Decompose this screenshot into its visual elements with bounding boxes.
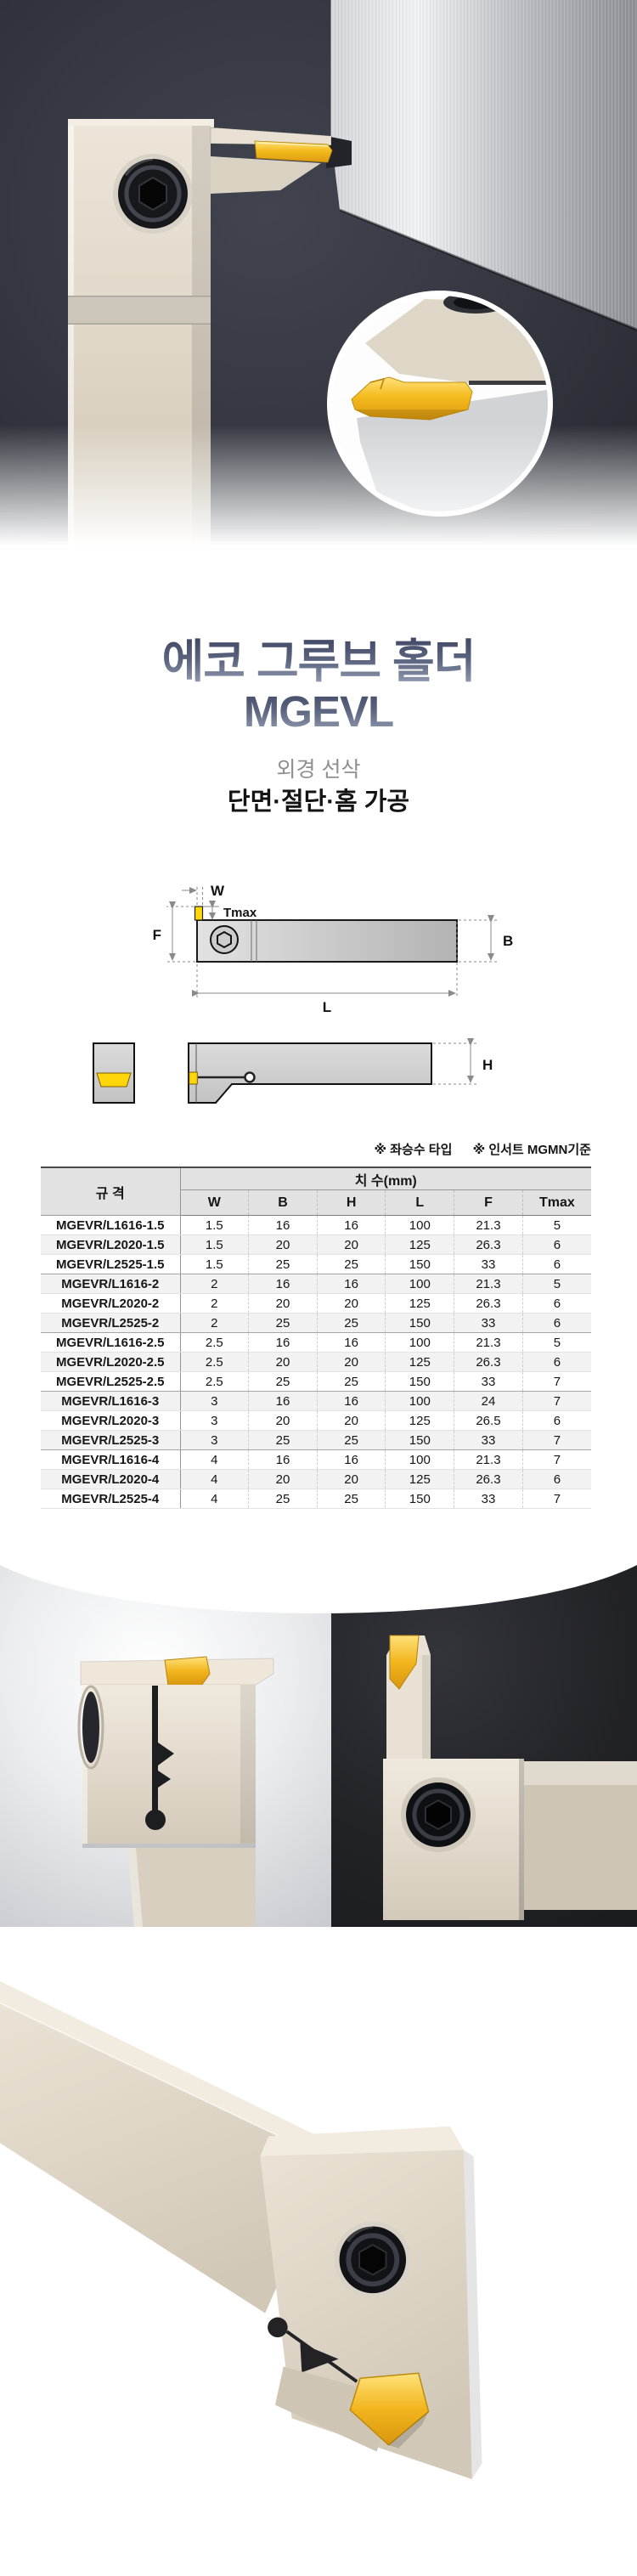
diagram-side-view: H [93, 1043, 493, 1103]
diagram-screw [211, 926, 238, 953]
table-row: MGEVR/L2020-1.51.5202012526.36 [41, 1235, 591, 1255]
value-cell: 150 [386, 1489, 454, 1509]
spec-cell: MGEVR/L2525-4 [41, 1489, 180, 1509]
spec-cell: MGEVR/L2020-4 [41, 1470, 180, 1489]
value-cell: 20 [317, 1353, 386, 1372]
value-cell: 3 [180, 1431, 249, 1450]
dim-label-f: F [153, 927, 161, 943]
value-cell: 25 [249, 1313, 318, 1333]
dim-label-h: H [482, 1057, 493, 1073]
table-row: MGEVR/L1616-44161610021.37 [41, 1450, 591, 1470]
value-cell: 5 [522, 1274, 591, 1294]
value-cell: 4 [180, 1450, 249, 1470]
subtitle-turning: 외경 선삭 [0, 758, 637, 782]
table-row: MGEVR/L2525-442525150337 [41, 1489, 591, 1509]
tool-diagonal-image [0, 1981, 482, 2479]
value-cell: 25 [317, 1372, 386, 1392]
value-cell: 26.3 [454, 1294, 523, 1313]
spec-table: 규 격 치 수(mm) W B H L F Tmax MGEVR/L1616-1… [41, 1167, 591, 1509]
value-cell: 16 [317, 1392, 386, 1411]
spec-cell: MGEVR/L2020-2 [41, 1294, 180, 1313]
value-cell: 16 [317, 1216, 386, 1235]
value-cell: 2 [180, 1313, 249, 1333]
value-cell: 125 [386, 1353, 454, 1372]
value-cell: 25 [317, 1313, 386, 1333]
spec-cell: MGEVR/L1616-4 [41, 1450, 180, 1470]
value-cell: 25 [317, 1431, 386, 1450]
dimension-diagram: W Tmax F [0, 854, 637, 1134]
spec-cell: MGEVR/L2525-2.5 [41, 1372, 180, 1392]
hero-fade [0, 425, 637, 562]
value-cell: 25 [249, 1431, 318, 1450]
value-cell: 20 [249, 1235, 318, 1255]
spec-cell: MGEVR/L1616-2.5 [41, 1333, 180, 1353]
table-notes: ※ 좌승수 타입 ※ 인서트 MGMN기준 [41, 1140, 591, 1158]
value-cell: 7 [522, 1450, 591, 1470]
spec-cell: MGEVR/L2020-2.5 [41, 1353, 180, 1372]
value-cell: 16 [249, 1333, 318, 1353]
diagram-end-insert [97, 1073, 131, 1087]
value-cell: 20 [249, 1470, 318, 1489]
spec-cell: MGEVR/L2020-1.5 [41, 1235, 180, 1255]
bottom-photo-section [0, 1927, 637, 2576]
page-title: 에코 그루브 홀더 [0, 636, 637, 688]
value-cell: 25 [317, 1255, 386, 1274]
value-cell: 20 [317, 1294, 386, 1313]
value-cell: 100 [386, 1274, 454, 1294]
tool-front-view-image [79, 1657, 273, 1927]
value-cell: 6 [522, 1313, 591, 1333]
diagram-side-insert [189, 1072, 198, 1084]
value-cell: 100 [386, 1333, 454, 1353]
value-cell: 7 [522, 1372, 591, 1392]
photo-duo-art [0, 1551, 637, 1927]
value-cell: 20 [249, 1411, 318, 1431]
value-cell: 16 [249, 1274, 318, 1294]
spec-table-body: MGEVR/L1616-1.51.5161610021.35MGEVR/L202… [41, 1216, 591, 1509]
value-cell: 25 [317, 1489, 386, 1509]
value-cell: 20 [249, 1294, 318, 1313]
hero-photo-section [0, 0, 637, 562]
table-row: MGEVR/L2020-44202012526.36 [41, 1470, 591, 1489]
product-page: 에코 그루브 홀더 MGEVL 외경 선삭 단면·절단·홈 가공 [0, 0, 637, 2576]
dim-label-l: L [323, 999, 331, 1015]
dimension-diagram-art: W Tmax F [0, 854, 637, 1134]
table-row: MGEVR/L2525-2.52.52525150337 [41, 1372, 591, 1392]
value-cell: 33 [454, 1489, 523, 1509]
value-cell: 26.3 [454, 1235, 523, 1255]
value-cell: 6 [522, 1235, 591, 1255]
column-header-w: W [180, 1190, 249, 1216]
table-row: MGEVR/L1616-2.52.5161610021.35 [41, 1333, 591, 1353]
note-insert-standard: ※ 인서트 MGMN기준 [473, 1143, 591, 1157]
column-header-f: F [454, 1190, 523, 1216]
spec-cell: MGEVR/L1616-1.5 [41, 1216, 180, 1235]
value-cell: 26.3 [454, 1353, 523, 1372]
column-header-l: L [386, 1190, 454, 1216]
value-cell: 100 [386, 1216, 454, 1235]
value-cell: 16 [317, 1274, 386, 1294]
value-cell: 2.5 [180, 1353, 249, 1372]
table-row: MGEVR/L2020-33202012526.56 [41, 1411, 591, 1431]
value-cell: 16 [249, 1392, 318, 1411]
spec-cell: MGEVR/L2525-3 [41, 1431, 180, 1450]
value-cell: 26.5 [454, 1411, 523, 1431]
value-cell: 4 [180, 1489, 249, 1509]
value-cell: 125 [386, 1235, 454, 1255]
value-cell: 100 [386, 1450, 454, 1470]
value-cell: 6 [522, 1294, 591, 1313]
value-cell: 5 [522, 1333, 591, 1353]
value-cell: 20 [317, 1411, 386, 1431]
table-row: MGEVR/L2525-332525150337 [41, 1431, 591, 1450]
table-row: MGEVR/L2020-22202012526.36 [41, 1294, 591, 1313]
value-cell: 4 [180, 1470, 249, 1489]
value-cell: 150 [386, 1255, 454, 1274]
value-cell: 20 [249, 1353, 318, 1372]
column-header-tmax: Tmax [522, 1190, 591, 1216]
table-row: MGEVR/L1616-22161610021.35 [41, 1274, 591, 1294]
hex-screw [113, 154, 193, 234]
value-cell: 16 [249, 1216, 318, 1235]
table-row: MGEVR/L1616-1.51.5161610021.35 [41, 1216, 591, 1235]
value-cell: 6 [522, 1353, 591, 1372]
value-cell: 1.5 [180, 1255, 249, 1274]
value-cell: 16 [249, 1450, 318, 1470]
table-row: MGEVR/L2525-1.51.52525150336 [41, 1255, 591, 1274]
value-cell: 7 [522, 1431, 591, 1450]
dim-label-w: W [211, 883, 225, 899]
value-cell: 150 [386, 1431, 454, 1450]
value-cell: 21.3 [454, 1216, 523, 1235]
hex-screw-right [401, 1777, 476, 1852]
value-cell: 33 [454, 1313, 523, 1333]
value-cell: 33 [454, 1431, 523, 1450]
table-row: MGEVR/L2525-222525150336 [41, 1313, 591, 1333]
value-cell: 100 [386, 1392, 454, 1411]
column-header-b: B [249, 1190, 318, 1216]
tool-blade-up-image [383, 1635, 637, 1920]
insert-front [165, 1657, 210, 1686]
spec-cell: MGEVR/L1616-3 [41, 1392, 180, 1411]
photo-duo-section [0, 1551, 637, 1927]
diagram-top-view: W Tmax F [153, 883, 514, 1015]
value-cell: 2 [180, 1274, 249, 1294]
value-cell: 2.5 [180, 1333, 249, 1353]
side-screw [82, 1692, 99, 1763]
dim-label-tmax: Tmax [223, 906, 257, 920]
value-cell: 3 [180, 1392, 249, 1411]
table-row: MGEVR/L2020-2.52.5202012526.36 [41, 1353, 591, 1372]
value-cell: 125 [386, 1294, 454, 1313]
note-hand-type: ※ 좌승수 타입 [374, 1143, 452, 1157]
spec-column-header: 규 격 [41, 1167, 180, 1216]
value-cell: 21.3 [454, 1333, 523, 1353]
value-cell: 20 [317, 1235, 386, 1255]
value-cell: 6 [522, 1255, 591, 1274]
bottom-photo-art [0, 1927, 637, 2576]
value-cell: 5 [522, 1216, 591, 1235]
dim-label-b: B [503, 933, 513, 949]
value-cell: 3 [180, 1411, 249, 1431]
value-cell: 21.3 [454, 1274, 523, 1294]
value-cell: 26.3 [454, 1470, 523, 1489]
hex-screw-bottom [335, 2222, 411, 2298]
value-cell: 21.3 [454, 1450, 523, 1470]
value-cell: 25 [249, 1255, 318, 1274]
value-cell: 7 [522, 1489, 591, 1509]
value-cell: 6 [522, 1470, 591, 1489]
arc-divider [0, 1551, 637, 1613]
value-cell: 6 [522, 1411, 591, 1431]
value-cell: 16 [317, 1333, 386, 1353]
value-cell: 7 [522, 1392, 591, 1411]
column-header-h: H [317, 1190, 386, 1216]
value-cell: 1.5 [180, 1216, 249, 1235]
spec-cell: MGEVR/L2020-3 [41, 1411, 180, 1431]
title-block: 에코 그루브 홀더 MGEVL 외경 선삭 단면·절단·홈 가공 [0, 636, 637, 816]
value-cell: 125 [386, 1411, 454, 1431]
spec-cell: MGEVR/L2525-2 [41, 1313, 180, 1333]
value-cell: 150 [386, 1372, 454, 1392]
spec-cell: MGEVR/L1616-2 [41, 1274, 180, 1294]
dimension-header: 치 수(mm) [180, 1167, 591, 1190]
value-cell: 16 [317, 1450, 386, 1470]
value-cell: 1.5 [180, 1235, 249, 1255]
value-cell: 2 [180, 1294, 249, 1313]
value-cell: 20 [317, 1470, 386, 1489]
diagram-insert-top [195, 907, 203, 920]
value-cell: 150 [386, 1313, 454, 1333]
value-cell: 33 [454, 1255, 523, 1274]
value-cell: 25 [249, 1372, 318, 1392]
subtitle-machining: 단면·절단·홈 가공 [0, 788, 637, 816]
value-cell: 33 [454, 1372, 523, 1392]
model-name: MGEVL [0, 688, 637, 736]
value-cell: 2.5 [180, 1372, 249, 1392]
table-row: MGEVR/L1616-331616100247 [41, 1392, 591, 1411]
table-header-row-1: 규 격 치 수(mm) [41, 1167, 591, 1190]
value-cell: 24 [454, 1392, 523, 1411]
value-cell: 25 [249, 1489, 318, 1509]
value-cell: 125 [386, 1470, 454, 1489]
spec-cell: MGEVR/L2525-1.5 [41, 1255, 180, 1274]
shank-chamfer-band [68, 296, 211, 325]
